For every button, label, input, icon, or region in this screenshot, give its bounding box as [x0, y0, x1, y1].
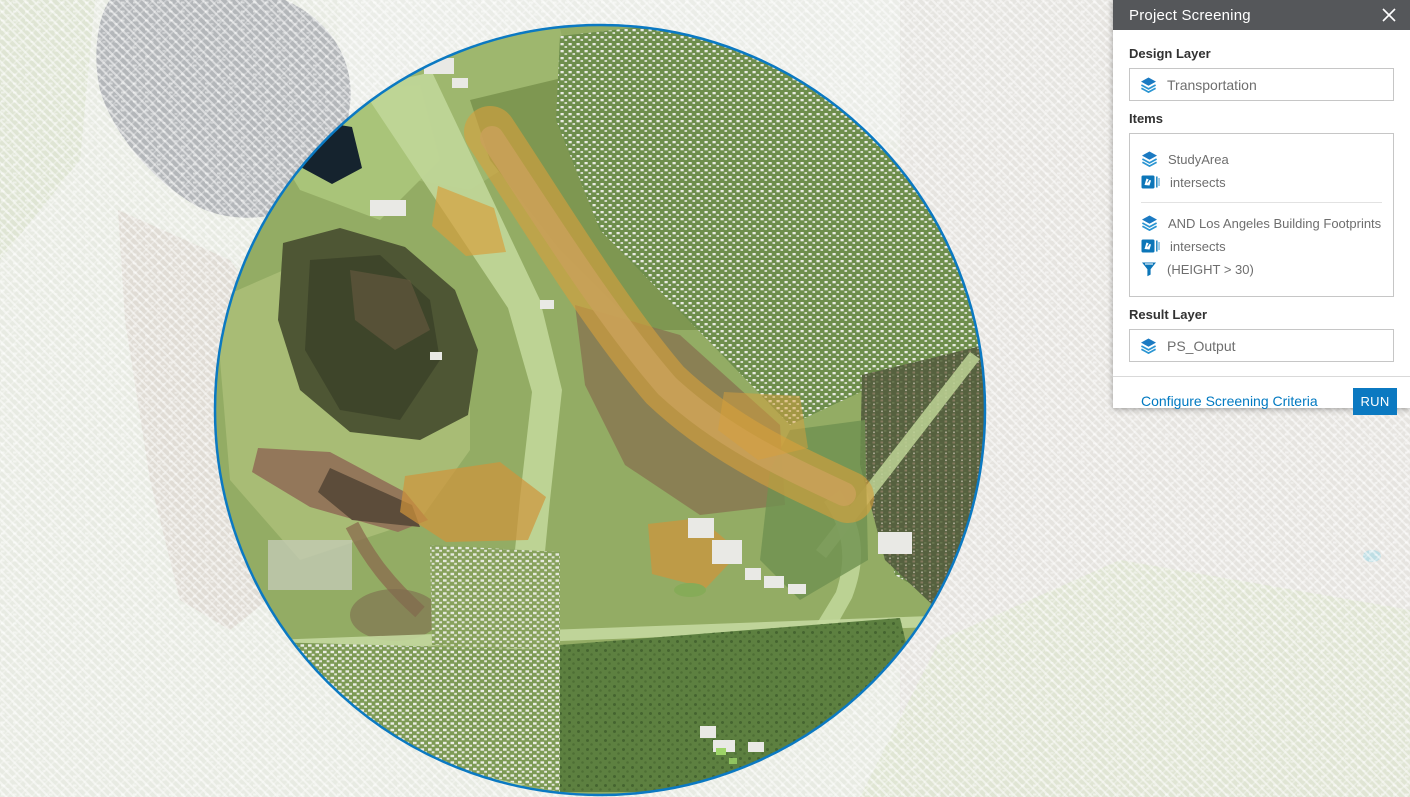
intersect-icon [1141, 238, 1160, 254]
panel-body: Design Layer Transportation Items [1113, 30, 1410, 362]
item-filter[interactable]: (HEIGHT > 30) [1141, 261, 1382, 277]
item-layer[interactable]: AND Los Angeles Building Footprints [1141, 215, 1382, 231]
item-layer[interactable]: StudyArea [1141, 151, 1382, 167]
result-layer-value: PS_Output [1167, 338, 1236, 354]
intersect-icon [1141, 174, 1160, 190]
item-layer-name: AND Los Angeles Building Footprints [1168, 216, 1381, 231]
design-layer-label: Design Layer [1129, 46, 1394, 61]
items-divider [1141, 202, 1382, 203]
funnel-icon [1141, 261, 1157, 277]
item-relation-name: intersects [1170, 239, 1226, 254]
design-layer-field[interactable]: Transportation [1129, 68, 1394, 101]
configure-screening-criteria-link[interactable]: Configure Screening Criteria [1141, 393, 1318, 409]
project-screening-app: Project Screening Design Layer Transport… [0, 0, 1410, 797]
panel-title: Project Screening [1129, 7, 1251, 24]
item-relation-name: intersects [1170, 175, 1226, 190]
run-button[interactable]: RUN [1353, 388, 1397, 415]
panel-header: Project Screening [1113, 0, 1410, 30]
layers-icon [1141, 151, 1158, 167]
item-layer-name: StudyArea [1168, 152, 1229, 167]
items-label: Items [1129, 111, 1394, 126]
layers-icon [1140, 338, 1157, 354]
layers-icon [1140, 77, 1157, 93]
result-layer-field[interactable]: PS_Output [1129, 329, 1394, 362]
item-filter-expression: (HEIGHT > 30) [1167, 262, 1254, 277]
result-layer-label: Result Layer [1129, 307, 1394, 322]
project-screening-panel: Project Screening Design Layer Transport… [1113, 0, 1410, 408]
items-list: StudyArea intersects [1129, 133, 1394, 297]
item-relation[interactable]: intersects [1141, 174, 1382, 190]
close-icon[interactable] [1380, 6, 1398, 24]
layers-icon [1141, 215, 1158, 231]
item-relation[interactable]: intersects [1141, 238, 1382, 254]
design-layer-value: Transportation [1167, 77, 1257, 93]
panel-footer: Configure Screening Criteria RUN [1113, 376, 1410, 425]
